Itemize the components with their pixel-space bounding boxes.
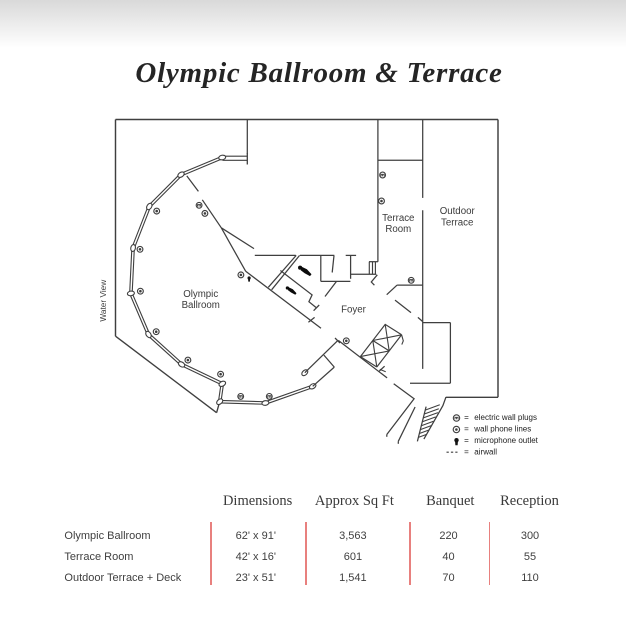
svg-text:wall phone lines: wall phone lines [473,425,531,434]
svg-text:Terrace: Terrace [441,218,473,229]
svg-text:=: = [464,425,469,434]
svg-text:airwall: airwall [474,448,497,457]
svg-text:Water View: Water View [98,279,108,322]
svg-text:=: = [464,413,469,422]
svg-text:Terrace: Terrace [382,213,414,224]
svg-text:Ballroom: Ballroom [182,300,220,311]
svg-text:Olympic: Olympic [183,289,218,300]
svg-text:=: = [464,448,469,457]
svg-text:Foyer: Foyer [341,305,367,316]
svg-text:microphone outlet: microphone outlet [474,436,538,445]
svg-text:Room: Room [385,224,411,235]
svg-text:Outdoor: Outdoor [440,206,476,217]
svg-text:electric wall plugs: electric wall plugs [474,413,537,422]
svg-text:=: = [464,436,469,445]
